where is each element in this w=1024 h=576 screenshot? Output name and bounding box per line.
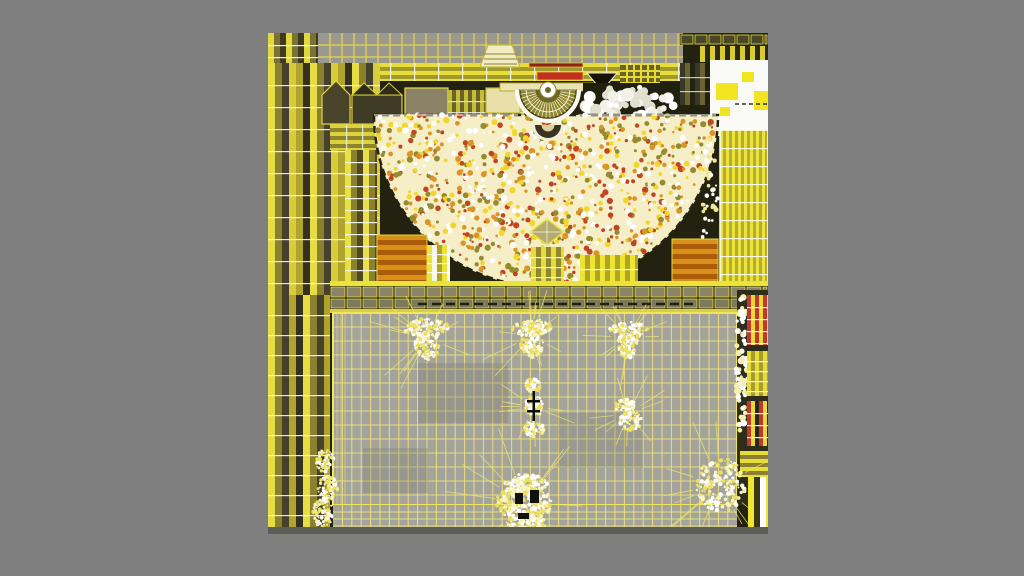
top-right-cells bbox=[680, 34, 768, 45]
orange-block-left bbox=[377, 235, 427, 283]
entry-block bbox=[486, 88, 520, 113]
render-image bbox=[268, 33, 768, 534]
fountain-glyph-1 bbox=[515, 493, 523, 504]
left-mid-blocks bbox=[345, 150, 377, 284]
cornice-top-line bbox=[330, 281, 768, 286]
flag-stripes-3 bbox=[747, 401, 768, 446]
fountain-glyph-3 bbox=[518, 513, 529, 519]
court-square-3 bbox=[754, 91, 768, 110]
desktop-background bbox=[0, 0, 1024, 576]
red-bar-lower bbox=[537, 72, 583, 80]
orange-block-right bbox=[672, 239, 718, 283]
top-right-dark-cols bbox=[680, 63, 712, 105]
court-square-2 bbox=[742, 72, 754, 82]
flag-stripes-1 bbox=[747, 295, 768, 345]
bottom-right-bars bbox=[748, 477, 768, 534]
cornice-row-1 bbox=[330, 286, 768, 298]
right-panel bbox=[720, 130, 768, 290]
top-right-fans bbox=[700, 46, 768, 62]
plaza-noise-3 bbox=[363, 448, 428, 493]
towers-top-left bbox=[268, 33, 318, 63]
obelisk-cross-post bbox=[533, 391, 536, 421]
court-square-1 bbox=[716, 83, 738, 100]
flag-stripes-2 bbox=[747, 351, 768, 396]
right-hstripe-block bbox=[740, 451, 768, 477]
bottom-dark-strip bbox=[268, 527, 768, 534]
plaza-noise-1 bbox=[418, 363, 508, 423]
red-bar-upper bbox=[529, 63, 583, 67]
stripe-col-a bbox=[427, 245, 450, 283]
court-square-4 bbox=[720, 107, 730, 116]
left-towers-lower bbox=[268, 295, 330, 534]
yellow-blocks bbox=[580, 255, 638, 283]
fountain-glyph-2 bbox=[530, 490, 539, 503]
